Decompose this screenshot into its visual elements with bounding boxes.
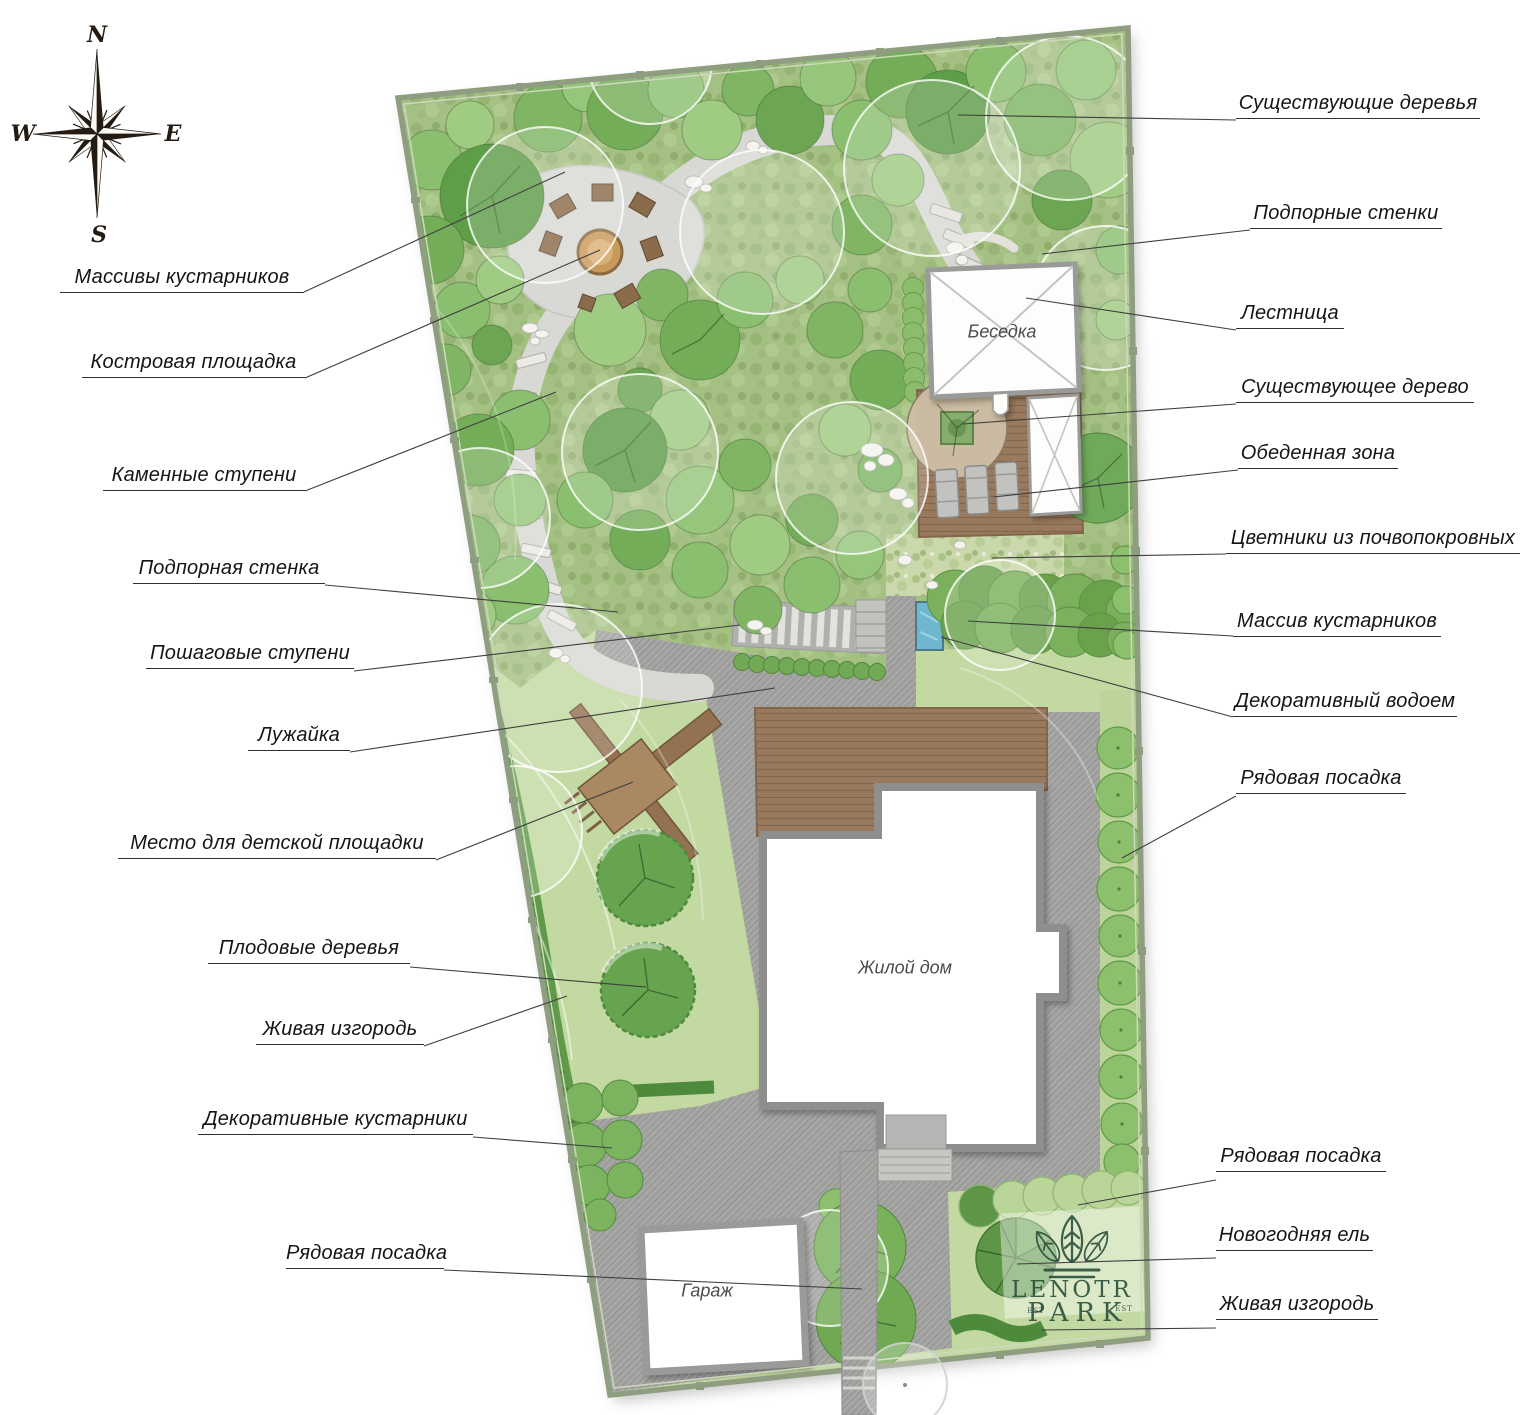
landscape-plan-image: N E S W Массивы кустарников Костровая пл… (0, 0, 1536, 1415)
compass-south-letter: S (91, 222, 107, 248)
lounge-chairs (935, 462, 1020, 518)
callout-decorative-pond: Декоративный водоем (1233, 689, 1457, 717)
callout-shrub-mass: Массив кустарников (1233, 609, 1441, 637)
callout-row-planting-garage: Рядовая посадка (286, 1241, 444, 1269)
callout-existing-tree: Существующее дерево (1236, 375, 1474, 403)
callout-shrub-masses: Массивы кустарников (60, 265, 304, 293)
logo-est-right: EST (1115, 1305, 1133, 1313)
gazebo-label: Беседка (968, 322, 1037, 343)
callout-stone-steps: Каменные ступени (103, 463, 305, 491)
compass-rose-icon: N E S W (11, 22, 183, 248)
compass-north-letter: N (86, 22, 108, 48)
pergola-structure (1028, 395, 1081, 515)
callout-fire-pit-area: Костровая площадка (82, 350, 305, 378)
compass-west-letter: W (11, 121, 38, 147)
callout-playground-area: Место для детской площадки (118, 831, 436, 859)
lawn-staircase (856, 600, 886, 652)
callout-fruit-trees: Плодовые деревья (208, 936, 410, 964)
callout-hedge-left: Живая изгородь (256, 1017, 424, 1045)
callout-retaining-walls: Подпорные стенки (1250, 201, 1442, 229)
callout-hedge-right: Живая изгородь (1216, 1292, 1378, 1320)
compass-east-letter: E (164, 121, 183, 147)
callout-new-year-spruce: Новогодняя ель (1216, 1223, 1373, 1251)
callout-retaining-wall: Подпорная стенка (133, 556, 325, 584)
garage-label: Гараж (681, 1281, 733, 1302)
callout-staircase: Лестница (1236, 301, 1344, 329)
side-path (886, 596, 916, 714)
callout-dining-area: Обеденная зона (1238, 441, 1398, 469)
house-label: Жилой дом (858, 958, 952, 979)
callout-groundcover-beds: Цветники из почвопокровных (1226, 526, 1520, 554)
logo-est-left: EST (1027, 1307, 1045, 1315)
callout-existing-trees: Существующие деревья (1236, 91, 1480, 119)
callout-decorative-shrubs: Декоративные кустарники (198, 1107, 473, 1135)
callout-row-planting-house: Рядовая посадка (1236, 766, 1406, 794)
callout-row-planting-lawn: Рядовая посадка (1216, 1144, 1386, 1172)
house-entrance-steps (878, 1115, 952, 1181)
callout-lawn: Лужайка (248, 723, 350, 751)
callout-stepping-steps: Пошаговые ступени (146, 641, 354, 669)
